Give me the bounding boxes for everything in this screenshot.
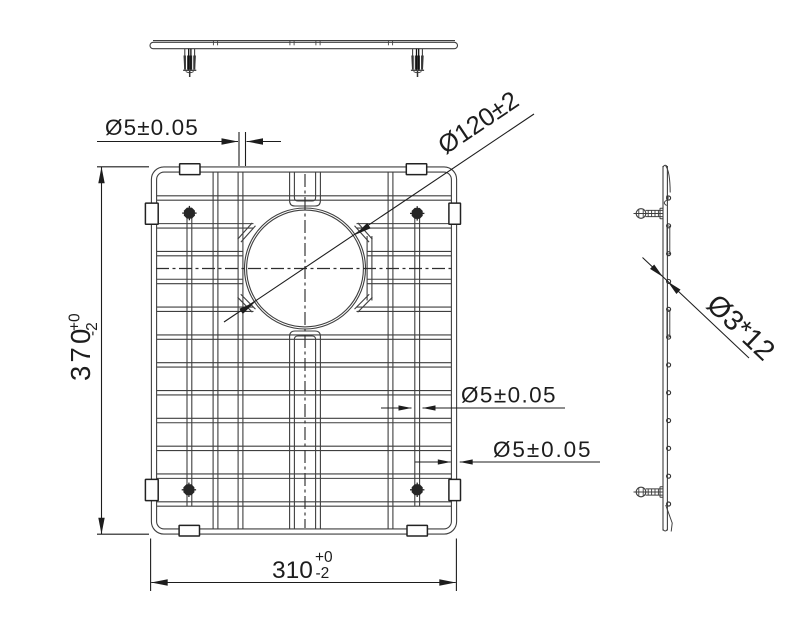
svg-text:Ø5±0.05: Ø5±0.05 <box>461 383 557 408</box>
svg-text:310: 310 <box>272 557 313 584</box>
svg-text:-2: -2 <box>84 322 101 336</box>
svg-text:+0: +0 <box>315 549 333 566</box>
svg-text:+0: +0 <box>67 313 84 331</box>
svg-text:-2: -2 <box>316 565 330 582</box>
svg-text:Ø5±0.05: Ø5±0.05 <box>493 437 592 462</box>
svg-text:Ø5±0.05: Ø5±0.05 <box>105 115 199 140</box>
